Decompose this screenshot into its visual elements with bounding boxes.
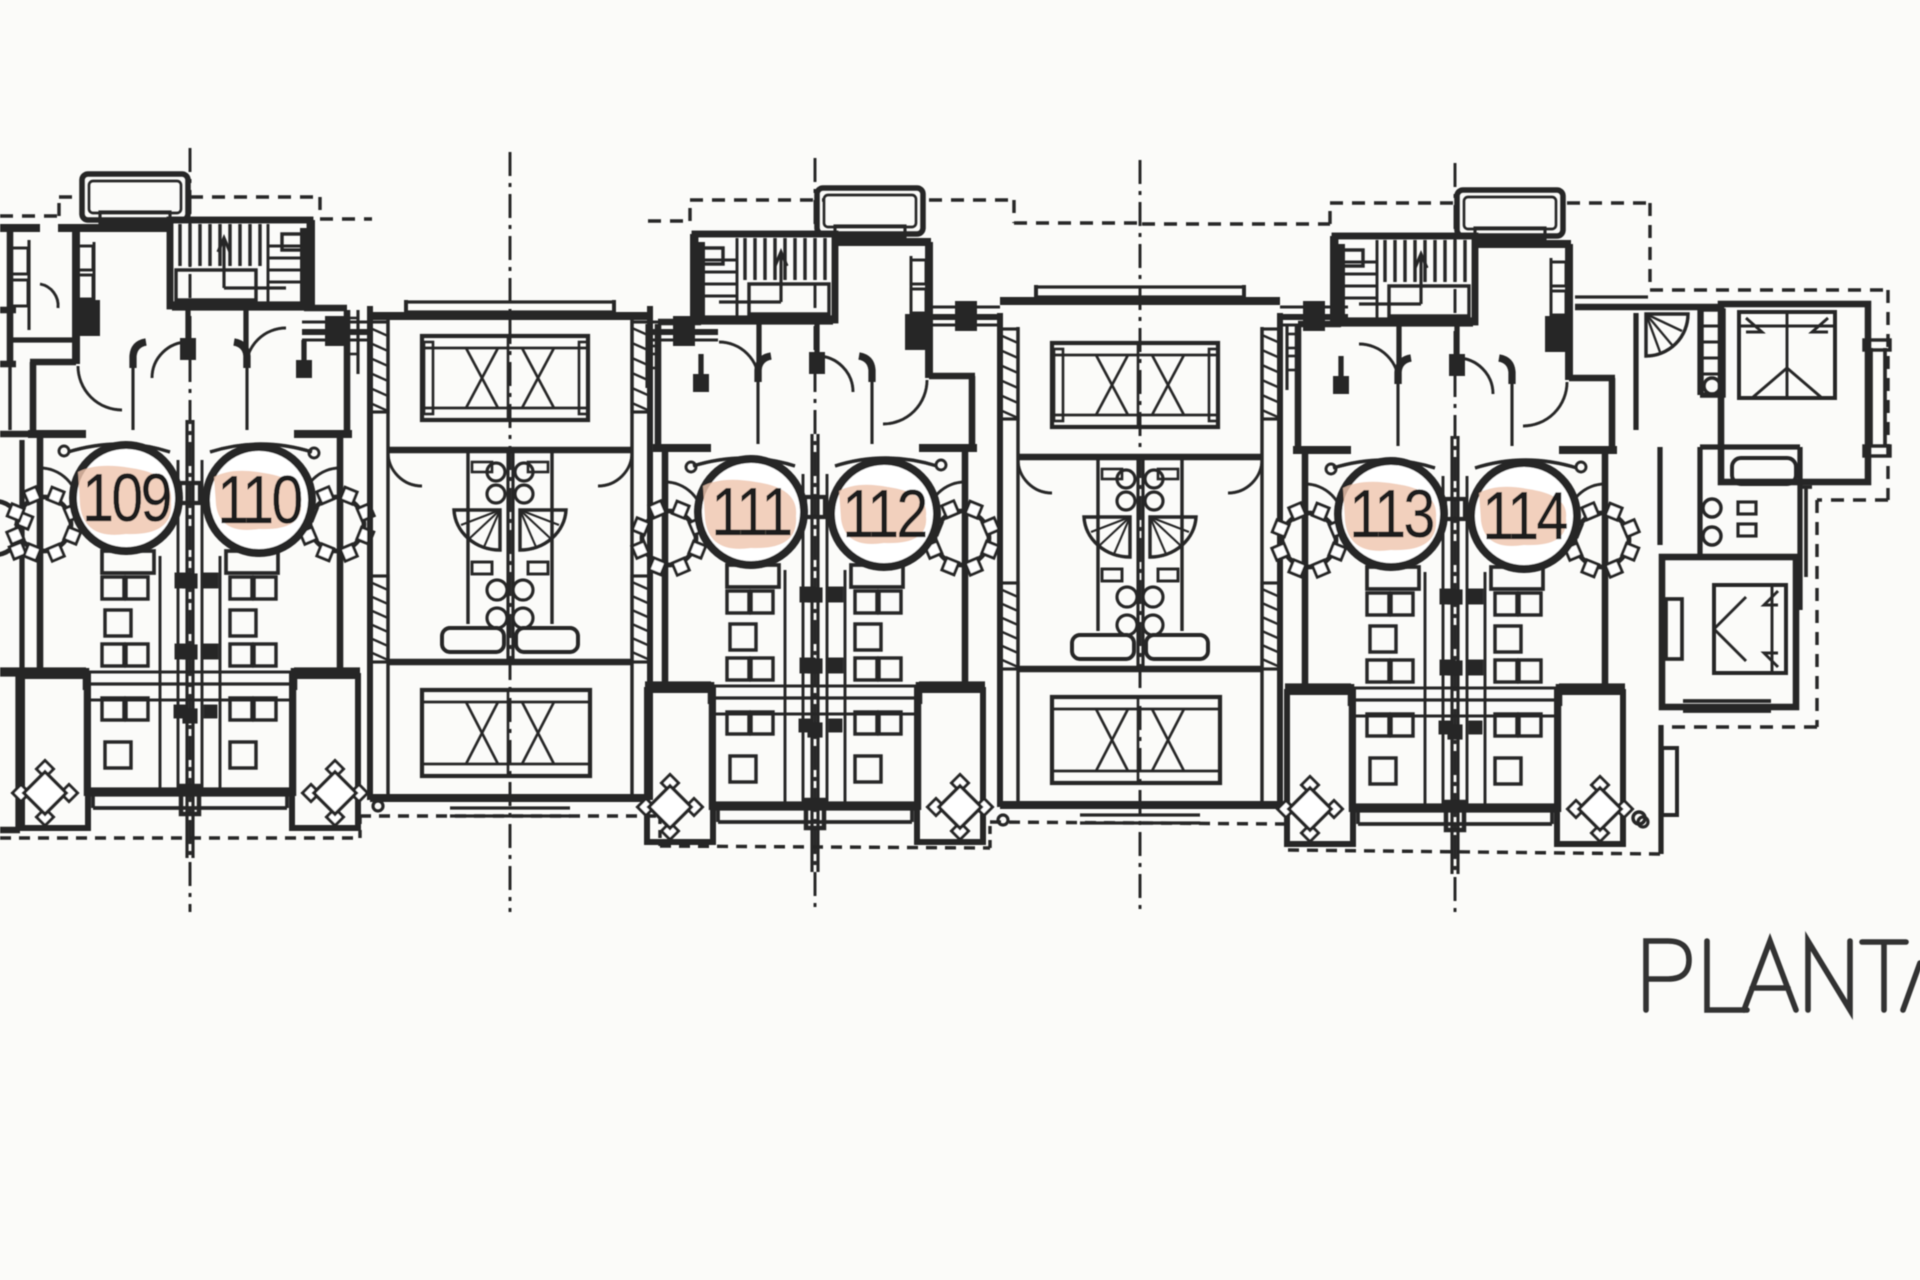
svg-text:111: 111 [711,474,790,550]
svg-text:114: 114 [1482,478,1567,554]
svg-text:110: 110 [217,462,301,538]
svg-text:113: 113 [1349,476,1433,552]
svg-text:112: 112 [842,476,925,552]
svg-text:109: 109 [82,460,170,536]
